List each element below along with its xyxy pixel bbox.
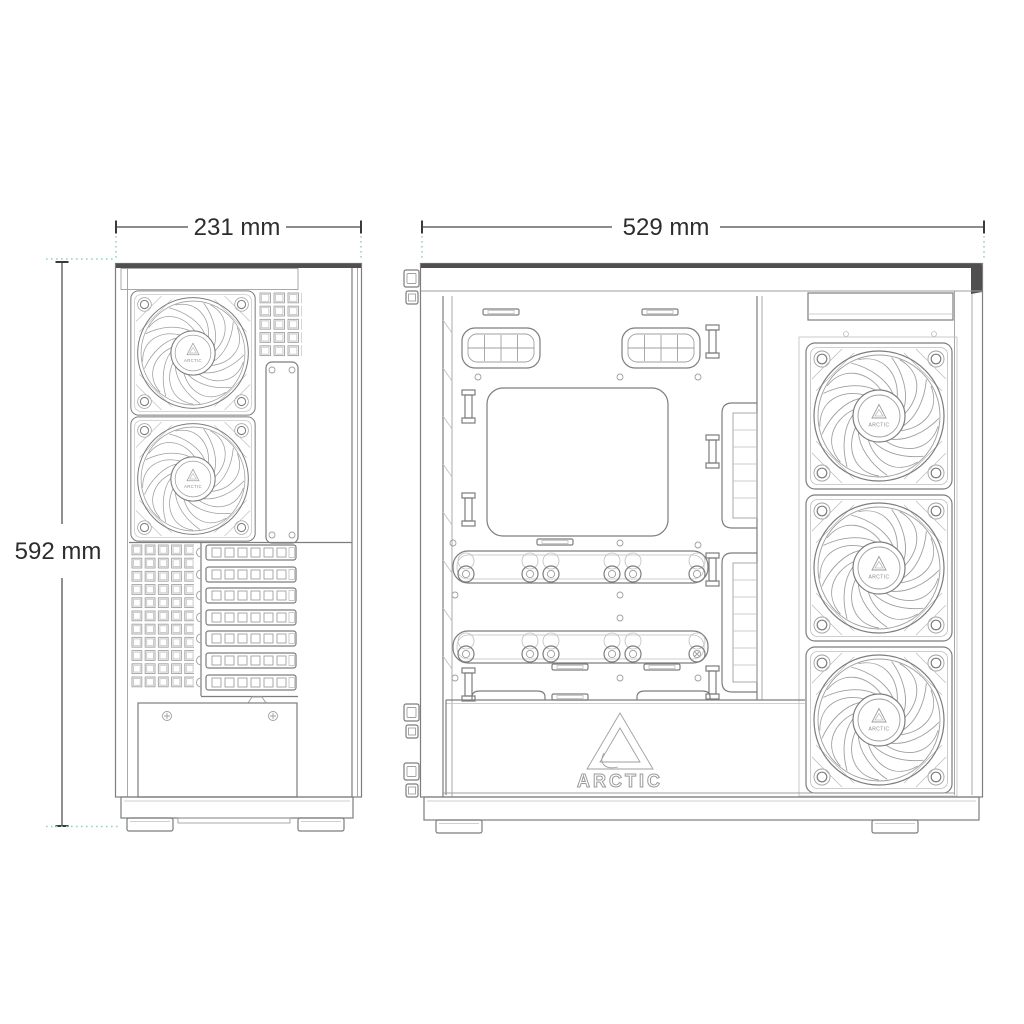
- dimension-depth: 529 mm: [422, 214, 984, 261]
- case-foot: [298, 818, 344, 831]
- diagram-svg: ARCTIC: [0, 0, 1024, 1024]
- front-fan-3: [805, 646, 952, 793]
- rear-edge-strip: [443, 296, 452, 797]
- motherboard-tray: [450, 296, 762, 701]
- cable-clip: [552, 694, 588, 700]
- rear-vent-grid-lower: [131, 544, 194, 689]
- arctic-logo: ARCTIC: [577, 713, 663, 791]
- top-edge: [421, 264, 981, 269]
- cable-clip: [644, 664, 680, 670]
- pci-slot: [197, 631, 297, 646]
- top-edge: [116, 264, 361, 269]
- cable-clip: [552, 664, 588, 670]
- case-foot: [436, 820, 482, 833]
- rear-bracket: [266, 362, 298, 543]
- dimension-front-width: 231 mm: [116, 214, 361, 261]
- cable-tie-point: [706, 666, 719, 699]
- rear-fan-1: [130, 290, 255, 415]
- rear-view: [116, 264, 362, 832]
- top-corner: [971, 264, 982, 294]
- cable-tie-point: [462, 668, 475, 701]
- hinge: [404, 270, 419, 287]
- rear-base: [121, 797, 353, 831]
- mounting-rail-1: [453, 551, 708, 583]
- dimension-label-height: 592 mm: [15, 538, 102, 565]
- cable-tie-point: [462, 493, 475, 526]
- cable-clip: [537, 539, 573, 545]
- pci-slot: [197, 545, 297, 560]
- dimension-label-front-width: 231 mm: [194, 214, 281, 241]
- cable-clip: [642, 309, 678, 315]
- hinge: [406, 784, 418, 797]
- cpu-cutout: [487, 388, 668, 536]
- cable-clip: [483, 309, 519, 315]
- hinge: [406, 725, 418, 738]
- rear-vent-grid-upper: [259, 292, 302, 358]
- front-fan-1: [805, 342, 952, 489]
- cable-tie-point: [706, 325, 719, 358]
- pci-slot: [197, 610, 297, 625]
- rear-fan-2: [130, 416, 255, 541]
- arctic-logo-text: ARCTIC: [577, 771, 663, 791]
- hinge: [404, 704, 419, 721]
- cable-cover-2: [722, 553, 757, 692]
- case-foot: [872, 820, 918, 833]
- rear-top-band: [121, 269, 298, 290]
- pci-slot: [197, 567, 297, 582]
- dimension-height: 592 mm: [15, 259, 118, 827]
- side-panel-hinges: [404, 270, 419, 797]
- cable-grommet: [622, 328, 700, 368]
- case-foot: [127, 818, 173, 831]
- hinge: [406, 291, 418, 304]
- pci-slot-area: [197, 543, 299, 703]
- case-dimension-diagram: ARCTIC: [0, 0, 1024, 1024]
- mounting-rail-2: [453, 631, 708, 663]
- cable-tie-point: [462, 390, 475, 423]
- cable-tie-point: [706, 435, 719, 468]
- dimension-label-depth: 529 mm: [623, 214, 710, 241]
- cable-grommet: [462, 328, 540, 368]
- side-base: [424, 797, 979, 833]
- hinge: [404, 763, 419, 780]
- side-view: ARCTIC: [404, 264, 983, 834]
- cable-cover-1: [722, 403, 757, 528]
- psu-bay: [138, 703, 297, 797]
- pci-slot: [197, 675, 297, 690]
- pci-slot: [197, 588, 297, 603]
- pci-slot: [197, 653, 297, 668]
- front-top-vent: [808, 293, 953, 320]
- front-fan-2: [805, 494, 952, 641]
